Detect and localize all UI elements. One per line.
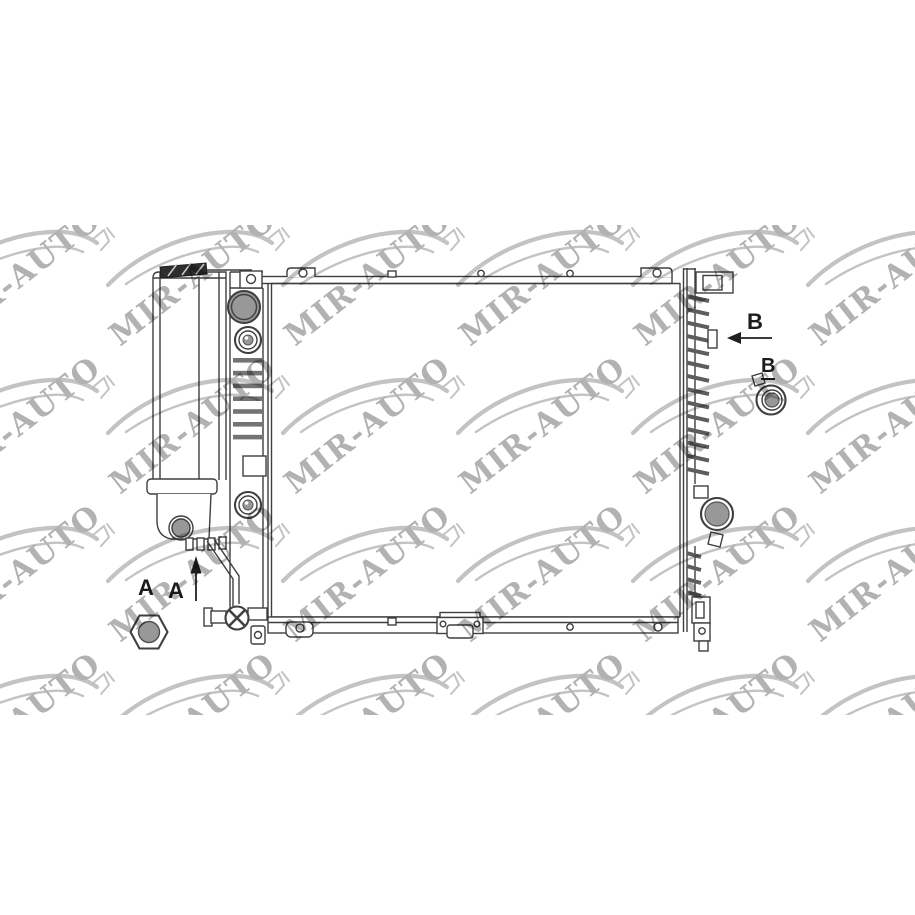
channel-mount-tab xyxy=(708,330,717,348)
bottom-rail xyxy=(268,613,678,639)
radiator-product-image: A A B B MIR-AUTO MIR- xyxy=(0,0,915,915)
left-tank-column xyxy=(228,271,268,611)
right-side-channel xyxy=(684,268,734,651)
callout-label-b2: B xyxy=(761,356,775,376)
drain-valve-upper xyxy=(235,327,261,353)
lower-hose-port xyxy=(694,486,733,547)
callout-label-b1: B xyxy=(747,311,763,333)
filler-cap xyxy=(228,291,260,323)
channel-bottom-bracket xyxy=(692,597,710,651)
callout-arrow-a xyxy=(191,556,202,601)
radiator-line-drawing xyxy=(0,0,915,915)
top-right-bracket xyxy=(696,272,733,293)
drain-plug-bracket xyxy=(437,613,483,639)
expansion-tank xyxy=(147,263,239,606)
callout-label-b2-text: B xyxy=(761,355,775,380)
drain-valve-lower xyxy=(235,492,261,518)
left-tank-ribs xyxy=(233,358,263,439)
phillips-screw xyxy=(204,607,267,645)
top-rail xyxy=(205,268,672,284)
callout-label-a1: A xyxy=(138,577,154,599)
channel-rungs xyxy=(687,296,710,596)
hex-nut xyxy=(131,616,168,649)
callout-label-a2: A xyxy=(168,580,184,602)
radiator-core xyxy=(268,268,684,632)
